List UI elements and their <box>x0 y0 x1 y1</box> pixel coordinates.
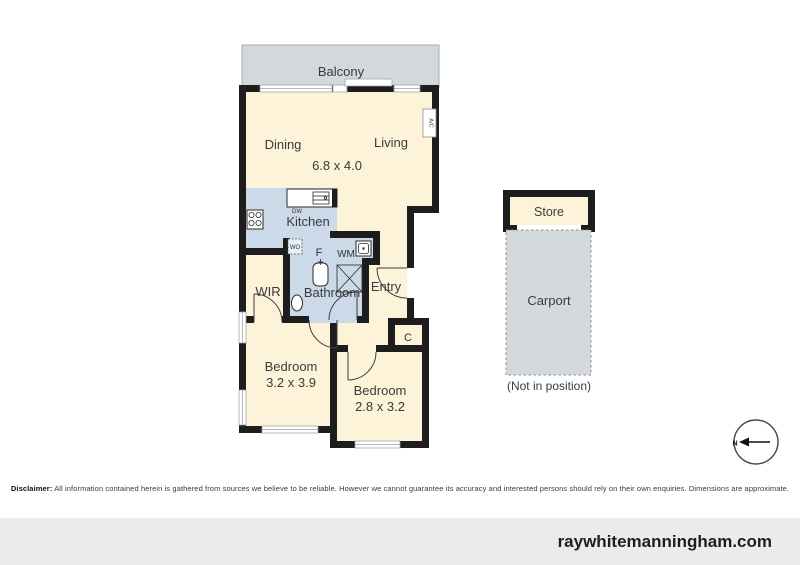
fridge-label-2: F <box>316 247 323 259</box>
toilet-icon <box>292 295 303 311</box>
disclaimer-label: Disclaimer: <box>11 484 53 493</box>
kitchen-bench-icon <box>287 189 337 207</box>
floorplan-svg: Balcony <box>0 0 800 518</box>
washing-machine-label: WM <box>337 249 355 260</box>
living-dining-dims: 6.8 x 4.0 <box>312 158 362 173</box>
room-label-balcony: Balcony <box>318 64 365 79</box>
footer-website: raywhitemanningham.com <box>558 518 772 565</box>
room-label-dining: Dining <box>265 137 302 152</box>
compass-north-label: N <box>732 441 737 448</box>
room-label-kitchen: Kitchen <box>286 214 329 229</box>
bedroom1-dims: 3.2 x 3.9 <box>266 375 316 390</box>
closet-label: C <box>404 332 412 344</box>
room-label-bedroom2: Bedroom <box>354 383 407 398</box>
disclaimer-body: All information contained herein is gath… <box>52 484 789 493</box>
room-label-carport: Carport <box>527 293 571 308</box>
laundry-tub-icon <box>356 241 371 256</box>
carport-note: (Not in position) <box>507 379 591 393</box>
floorplan-page: { "plan": { "balcony": "Balcony", "dinin… <box>0 0 800 565</box>
ac-label: A/C <box>428 118 434 127</box>
wall-oven-label: WO <box>290 245 301 251</box>
room-label-bathroom: Bathroom <box>304 285 360 300</box>
room-label-entry: Entry <box>371 279 402 294</box>
room-label-living: Living <box>374 135 408 150</box>
room-label-bedroom1: Bedroom <box>265 359 318 374</box>
carport-block: Store Carport (Not in position) <box>503 190 595 393</box>
room-label-store: Store <box>534 205 564 219</box>
room-balcony: Balcony <box>242 45 439 88</box>
sliding-door-panel <box>345 79 392 86</box>
cooktop-icon <box>247 210 263 229</box>
compass: N <box>732 420 778 464</box>
footer-bar: raywhitemanningham.com <box>0 518 800 565</box>
compass-arrow-head <box>739 438 749 447</box>
room-label-wir: WIR <box>255 284 280 299</box>
disclaimer-text: Disclaimer: All information contained he… <box>0 484 800 493</box>
bedroom2-dims: 2.8 x 3.2 <box>355 399 405 414</box>
